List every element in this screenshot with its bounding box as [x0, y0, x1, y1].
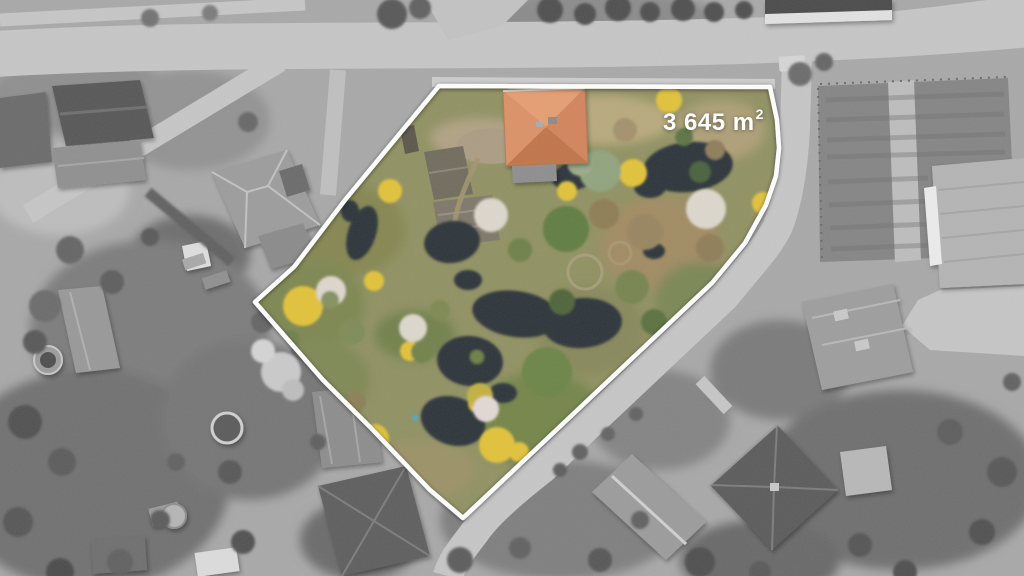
aerial-photo: 3 645 m2	[0, 0, 1024, 576]
area-exponent: 2	[756, 106, 764, 122]
area-value: 3 645 m	[663, 109, 755, 136]
aerial-scene	[0, 0, 1024, 576]
area-label: 3 645 m2	[663, 109, 763, 135]
photo-grain	[0, 0, 1024, 576]
